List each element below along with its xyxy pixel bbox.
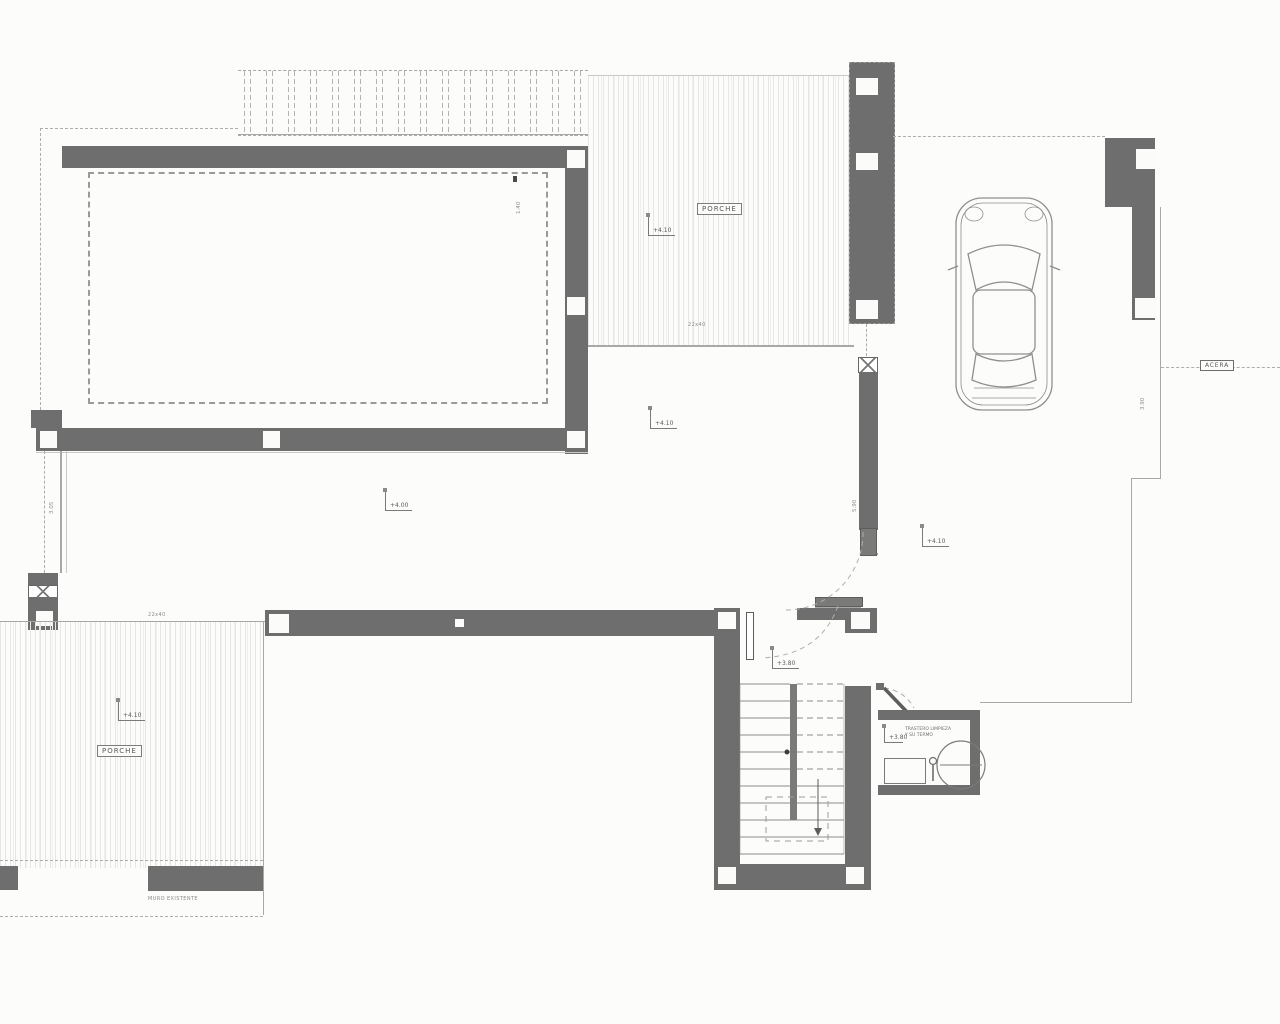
retaining-wall-segment-right [148, 866, 263, 891]
floorplan-canvas: 1.40 3.05 PORCHE +4.10 22x40 5.90 ACERA … [0, 0, 1280, 1024]
level-marker-stair-landing: +3.80 [772, 648, 799, 669]
column-opening [718, 867, 736, 884]
pool-deck-edge-line [36, 452, 588, 453]
north-east-wall [849, 62, 895, 324]
south-living-wall [265, 610, 714, 636]
wall-vent-dot [455, 619, 464, 627]
staircase-drawing [738, 684, 846, 862]
level-marker-living-center: +4.00 [385, 490, 412, 511]
passage-wall-line [60, 451, 62, 573]
porch-bottom-label: PORCHE [97, 745, 142, 757]
pool-basin-outline [88, 172, 548, 404]
boundary-dashed-left [40, 128, 41, 410]
level-marker-porch-top: +4.10 [648, 215, 675, 236]
car-topview-drawing [948, 192, 1060, 416]
column-opening [263, 431, 280, 448]
utility-wall-top [878, 710, 980, 720]
passage-dashed-line [44, 451, 45, 573]
column-opening [1135, 298, 1155, 318]
porch-bottom-right-edge [263, 622, 264, 915]
level-value: +3.80 [777, 660, 795, 667]
level-value: +4.10 [655, 420, 673, 427]
column-opening [1136, 149, 1155, 169]
washer-fixture [884, 758, 926, 784]
pool-edge-dim: 1.40 [516, 202, 522, 214]
column-opening [567, 431, 585, 448]
pergola-slats [238, 70, 588, 136]
wall-dashed-continuation [866, 324, 867, 356]
plot-line-bottom [980, 702, 1132, 703]
column-opening [856, 153, 878, 170]
pool-fitting-dot [513, 176, 517, 182]
column-opening [269, 614, 289, 633]
porch-top-edge [588, 75, 850, 76]
porch-bottom-dashed-lower [0, 916, 263, 917]
column-opening [856, 300, 878, 319]
retaining-wall-segment-left [0, 866, 18, 890]
porch-top-paving-dim: 22x40 [688, 322, 706, 328]
level-marker-living-upper: +4.10 [650, 408, 677, 429]
level-marker-porch-bottom: +4.10 [118, 700, 145, 721]
column-opening [40, 431, 57, 448]
plot-line-right [1160, 207, 1161, 478]
porch-bottom-paving-dim: 22x40 [148, 612, 166, 618]
street-level-dim: 3.90 [1140, 398, 1146, 410]
retaining-wall-note: MURO EXISTENTE [148, 896, 198, 902]
plot-line-right-lower [1131, 478, 1132, 702]
column-opening [856, 78, 878, 95]
porch-top-bottom-line [588, 345, 854, 347]
window-x-block [858, 357, 878, 373]
passage-block-upper [28, 573, 58, 585]
level-value: +4.00 [390, 502, 408, 509]
sidewalk-label-box: ACERA [1200, 360, 1234, 371]
pool-wall-top [62, 146, 587, 168]
level-marker-utility: +3.80 [884, 726, 903, 743]
water-heater-fixture [934, 738, 988, 792]
column-opening [846, 867, 864, 884]
boundary-dashed-top [40, 128, 238, 129]
passage-dim: 3.05 [49, 502, 55, 514]
plot-line-step [1131, 478, 1161, 479]
pergola-edge-line [238, 134, 588, 135]
passage-wall-line2 [66, 451, 67, 573]
porch-bottom-dashed-upper [0, 860, 263, 861]
garage-dashed-link [893, 136, 1105, 137]
column-opening [567, 297, 585, 315]
column-opening [567, 150, 585, 168]
level-value: +4.10 [123, 712, 141, 719]
valve-icon [928, 756, 938, 782]
level-value: +4.10 [653, 227, 671, 234]
porch-top-label: PORCHE [697, 203, 742, 215]
sidewalk-label: ACERA [1205, 362, 1229, 369]
pool-wall-left-corner [31, 410, 62, 428]
pool-wall-bottom [36, 428, 588, 451]
